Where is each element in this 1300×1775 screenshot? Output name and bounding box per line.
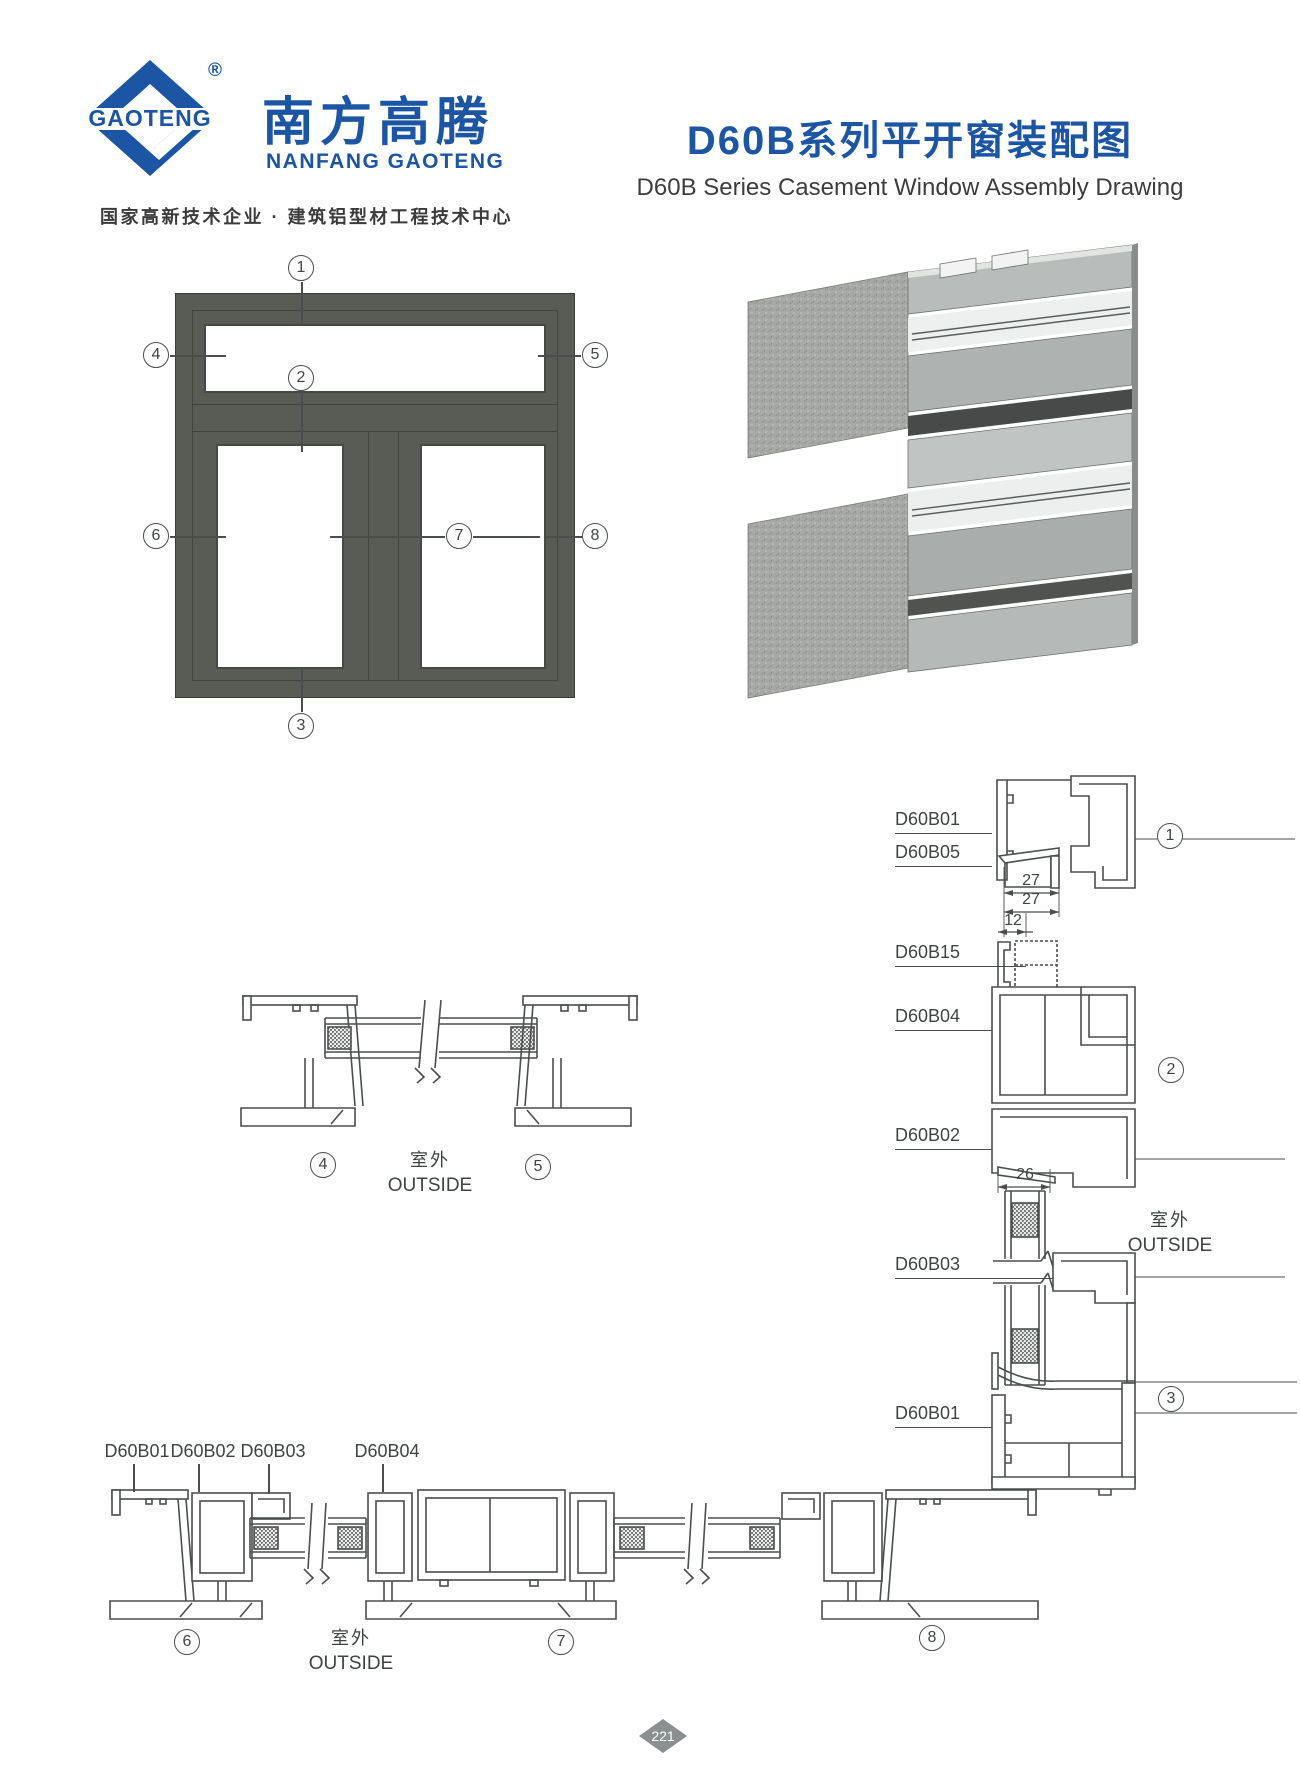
callout-7: 7 <box>446 523 472 549</box>
leader-line <box>198 1464 200 1492</box>
profile-label: D60B04 <box>342 1441 432 1462</box>
outside-cn: 室外 <box>370 1146 490 1172</box>
outside-label: 室外 OUTSIDE <box>291 1624 411 1675</box>
brand-name-en: NANFANG GAOTENG <box>266 150 504 174</box>
profile-label: D60B01 <box>895 809 992 834</box>
horizontal-section-top <box>235 990 645 1140</box>
callout-4: 4 <box>310 1152 336 1178</box>
leader-line <box>382 1464 384 1492</box>
profile-label: D60B01 <box>895 1403 992 1428</box>
dimension-27: 27 <box>1011 891 1051 909</box>
drawing-title-block: D60B系列平开窗装配图 D60B Series Casement Window… <box>560 108 1260 202</box>
transom-bar-line <box>192 431 558 432</box>
callout-2: 2 <box>1158 1057 1184 1083</box>
left-casement-glass <box>216 444 344 669</box>
callout-8: 8 <box>582 523 608 549</box>
outside-cn: 室外 <box>291 1624 411 1650</box>
logo-mark-text: GAOTENG <box>88 105 211 131</box>
callout-4: 4 <box>143 342 169 368</box>
profile-label: D60B15 <box>895 942 1026 967</box>
leader-line <box>538 355 581 357</box>
dimension-26: 26 <box>1005 1166 1045 1184</box>
dimension-12: 12 <box>993 912 1033 930</box>
profile-3d-render <box>740 238 1140 753</box>
horizontal-section-bottom <box>100 1485 1050 1650</box>
outside-en: OUTSIDE <box>1120 1235 1220 1257</box>
outside-label: 室外 OUTSIDE <box>1120 1206 1220 1257</box>
transom-glass <box>204 324 546 393</box>
callout-6: 6 <box>143 523 169 549</box>
outside-label: 室外 OUTSIDE <box>370 1146 490 1197</box>
window-elevation-drawing <box>175 293 575 698</box>
registered-mark: ® <box>208 60 222 82</box>
vertical-section <box>985 755 1300 1500</box>
brand-name-cn: 南方高腾 <box>262 80 494 155</box>
page-number: 221 <box>651 1728 674 1744</box>
leader-line <box>133 1464 135 1492</box>
profile-label: D60B03 <box>228 1441 318 1462</box>
leader-line <box>170 355 226 357</box>
callout-6: 6 <box>174 1629 200 1655</box>
callout-3: 3 <box>1158 1386 1184 1412</box>
mullion-line <box>368 431 369 680</box>
drawing-title-cn: D60B系列平开窗装配图 <box>560 108 1260 166</box>
callout-8: 8 <box>919 1625 945 1651</box>
company-logo: GAOTENG ® <box>85 58 225 190</box>
assembly-drawing-page: GAOTENG ® 南方高腾 NANFANG GAOTENG 国家高新技术企业 … <box>0 0 1300 1775</box>
company-tagline: 国家高新技术企业 · 建筑铝型材工程技术中心 <box>100 203 513 229</box>
dimension-27: 27 <box>1011 872 1051 890</box>
gaoteng-diamond-logo-icon: GAOTENG <box>85 58 225 190</box>
leader-line <box>301 392 303 452</box>
outside-en: OUTSIDE <box>291 1653 411 1675</box>
leader-line <box>268 1464 270 1494</box>
leader-line <box>301 668 303 712</box>
leader-line <box>330 536 445 538</box>
callout-3: 3 <box>288 713 314 739</box>
profile-label: D60B03 <box>895 1254 1053 1279</box>
callout-5: 5 <box>582 342 608 368</box>
outside-cn: 室外 <box>1120 1206 1220 1232</box>
leader-line <box>546 536 582 538</box>
mullion-line <box>398 431 399 680</box>
outside-en: OUTSIDE <box>370 1175 490 1197</box>
drawing-title-en: D60B Series Casement Window Assembly Dra… <box>560 174 1260 202</box>
callout-7: 7 <box>548 1629 574 1655</box>
transom-bar-line <box>192 404 558 405</box>
callout-2: 2 <box>288 365 314 391</box>
callout-5: 5 <box>525 1154 551 1180</box>
right-casement-glass <box>420 444 546 669</box>
leader-line <box>473 536 540 538</box>
leader-line <box>301 282 303 323</box>
callout-1: 1 <box>288 255 314 281</box>
profile-label: D60B02 <box>895 1125 992 1150</box>
profile-label: D60B04 <box>895 1006 992 1031</box>
profile-label: D60B05 <box>895 842 992 867</box>
callout-1: 1 <box>1157 823 1183 849</box>
leader-line <box>170 536 226 538</box>
page-number-badge: 221 <box>639 1719 687 1753</box>
